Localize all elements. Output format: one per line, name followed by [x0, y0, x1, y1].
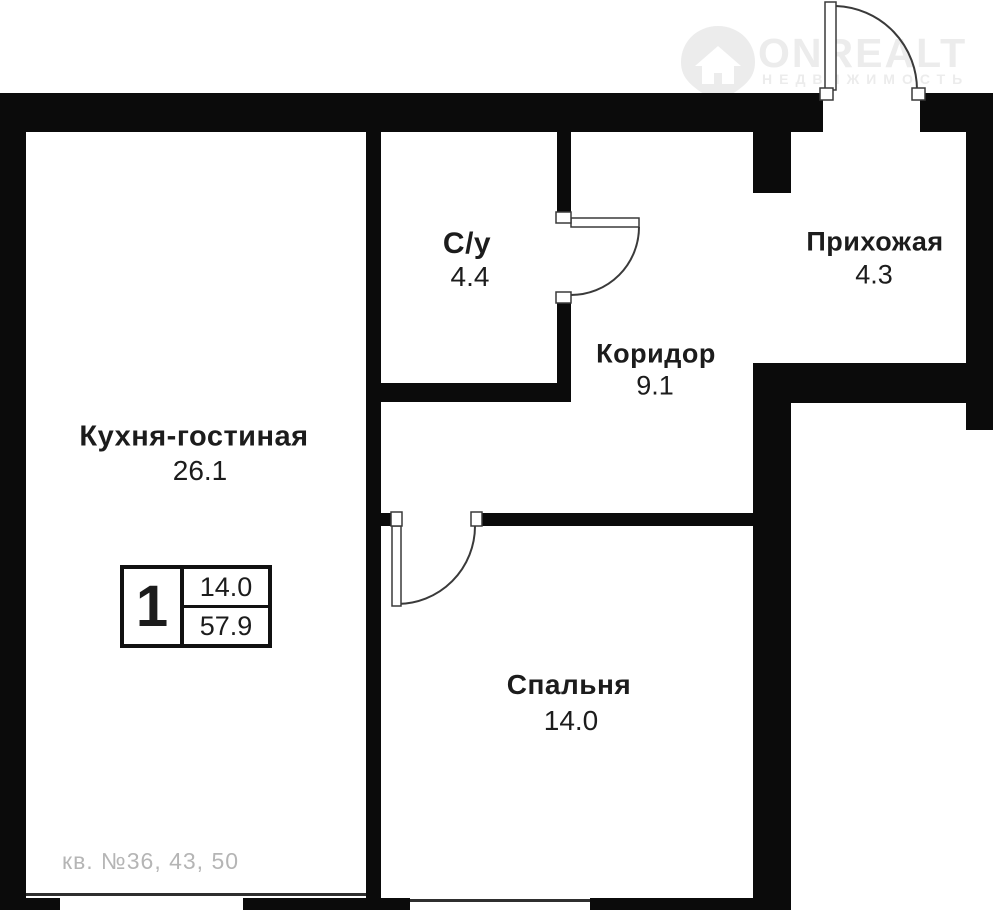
room-label-bathroom: С/у: [443, 227, 491, 261]
doors-windows-layer: [0, 0, 993, 910]
legend-areas: 14.0 57.9: [184, 569, 268, 644]
apartment-numbers-note: кв. №36, 43, 50: [62, 848, 239, 875]
legend-total-area: 57.9: [184, 608, 268, 644]
room-area-kitchen-living: 26.1: [173, 455, 228, 487]
area-legend-table: 1 14.0 57.9: [120, 565, 272, 648]
floor-plan: ONREALT НЕДВИЖИМОСТЬ: [0, 0, 993, 910]
room-label-kitchen-living: Кухня-гостиная: [79, 421, 308, 454]
legend-living-area: 14.0: [184, 569, 268, 608]
bedroom-door-icon: [391, 512, 482, 606]
room-area-bathroom: 4.4: [451, 261, 490, 293]
bedroom-window-icon: [410, 899, 590, 902]
room-area-bedroom: 14.0: [544, 705, 599, 737]
kitchen-window-icon: [26, 893, 366, 896]
room-label-hallway: Прихожая: [806, 227, 943, 258]
room-area-hallway: 4.3: [855, 260, 893, 291]
bathroom-door-icon: [556, 212, 639, 303]
room-label-bedroom: Спальня: [507, 669, 631, 701]
room-area-corridor: 9.1: [636, 371, 674, 402]
room-label-corridor: Коридор: [596, 339, 716, 370]
legend-rooms-count: 1: [124, 569, 184, 644]
entrance-door-icon: [820, 2, 925, 100]
